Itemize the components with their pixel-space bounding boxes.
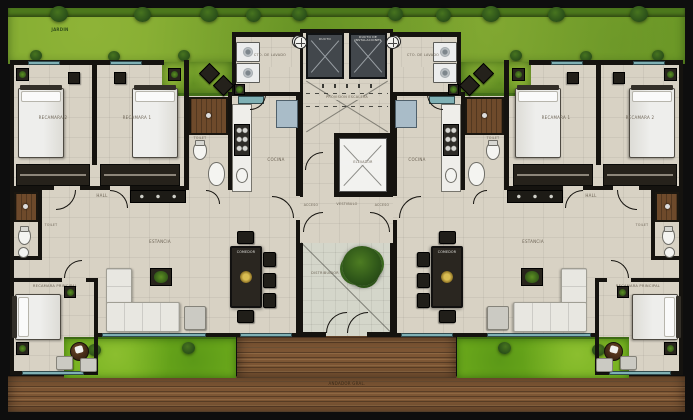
installations-duct-label: DUCTO DE INSTALACIONES <box>351 36 385 43</box>
stair-dashed-line <box>306 93 388 94</box>
vent-fan-icon <box>386 36 399 49</box>
access-label-right: ACCESO <box>369 204 395 208</box>
stair-marks <box>322 84 372 88</box>
vestibule-label: VESTIBULO <box>330 203 364 207</box>
wall <box>390 243 393 336</box>
wall <box>300 243 303 336</box>
stair-provision-label: PROVISION ESCALERA <box>310 96 384 100</box>
courtyard-label: DISTRIBUIDOR <box>302 272 348 276</box>
duct-label: DUCTO <box>308 38 342 41</box>
vent-fan-icon <box>294 36 307 49</box>
wall <box>300 332 326 337</box>
access-label-left: ACCESO <box>298 204 324 208</box>
elevator-label: ELEVADOR <box>340 161 386 165</box>
wall <box>300 33 303 197</box>
central-core: DUCTO DUCTO DE INSTALACIONES PROVISION E… <box>0 0 693 420</box>
floor-plan: JARDIN ANDADOR GRAL. <box>0 0 693 420</box>
wall <box>367 332 393 337</box>
courtyard-tree <box>342 246 382 286</box>
elevator-cab <box>339 138 387 192</box>
